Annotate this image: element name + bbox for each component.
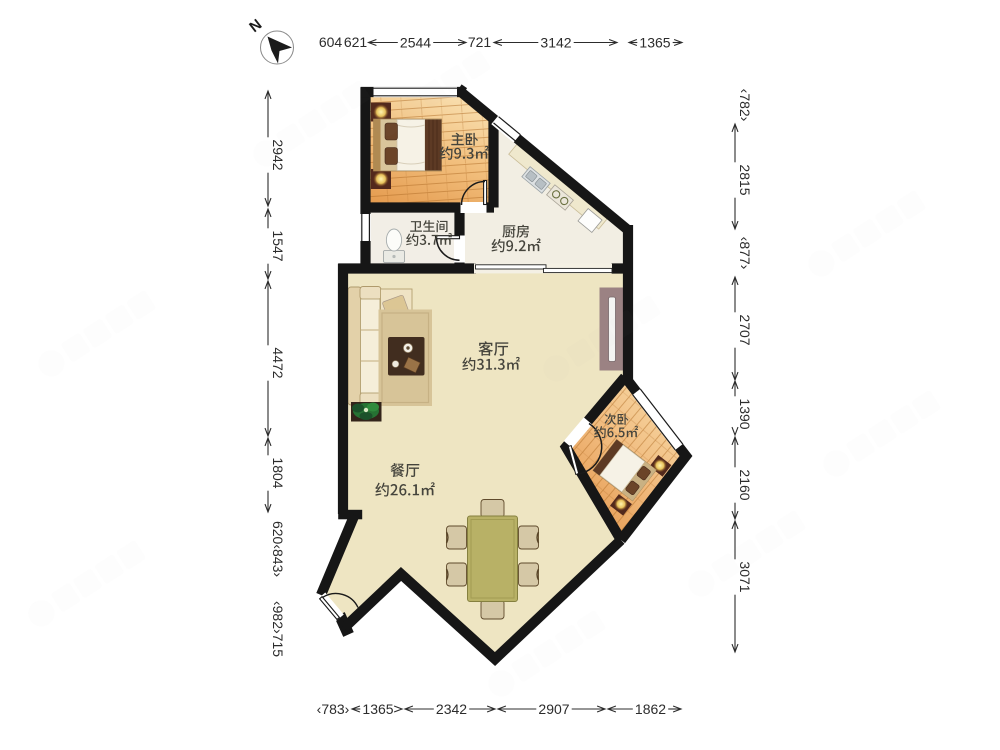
- svg-text:1365: 1365: [362, 701, 393, 717]
- svg-text:4472: 4472: [270, 347, 286, 378]
- svg-text:1390: 1390: [737, 398, 753, 429]
- svg-text:‹782›: ‹782›: [737, 89, 753, 122]
- svg-text:1862: 1862: [635, 701, 666, 717]
- svg-text:2707: 2707: [737, 314, 753, 345]
- svg-text:1547: 1547: [270, 230, 286, 261]
- svg-text:2544: 2544: [400, 35, 431, 51]
- svg-text:‹982›715: ‹982›715: [270, 601, 286, 657]
- svg-text:721: 721: [468, 34, 492, 50]
- svg-text:2907: 2907: [538, 701, 569, 717]
- svg-text:2815: 2815: [737, 164, 753, 195]
- svg-text:1804: 1804: [270, 457, 286, 488]
- svg-text:‹783›: ‹783›: [317, 701, 350, 717]
- svg-text:621: 621: [344, 34, 368, 50]
- svg-text:1365: 1365: [639, 35, 670, 51]
- svg-text:604: 604: [319, 34, 343, 50]
- svg-text:2160: 2160: [737, 469, 753, 500]
- svg-text:3142: 3142: [540, 35, 571, 51]
- svg-text:2342: 2342: [436, 701, 467, 717]
- svg-text:620‹843›: 620‹843›: [270, 521, 286, 577]
- svg-text:‹877›: ‹877›: [737, 237, 753, 270]
